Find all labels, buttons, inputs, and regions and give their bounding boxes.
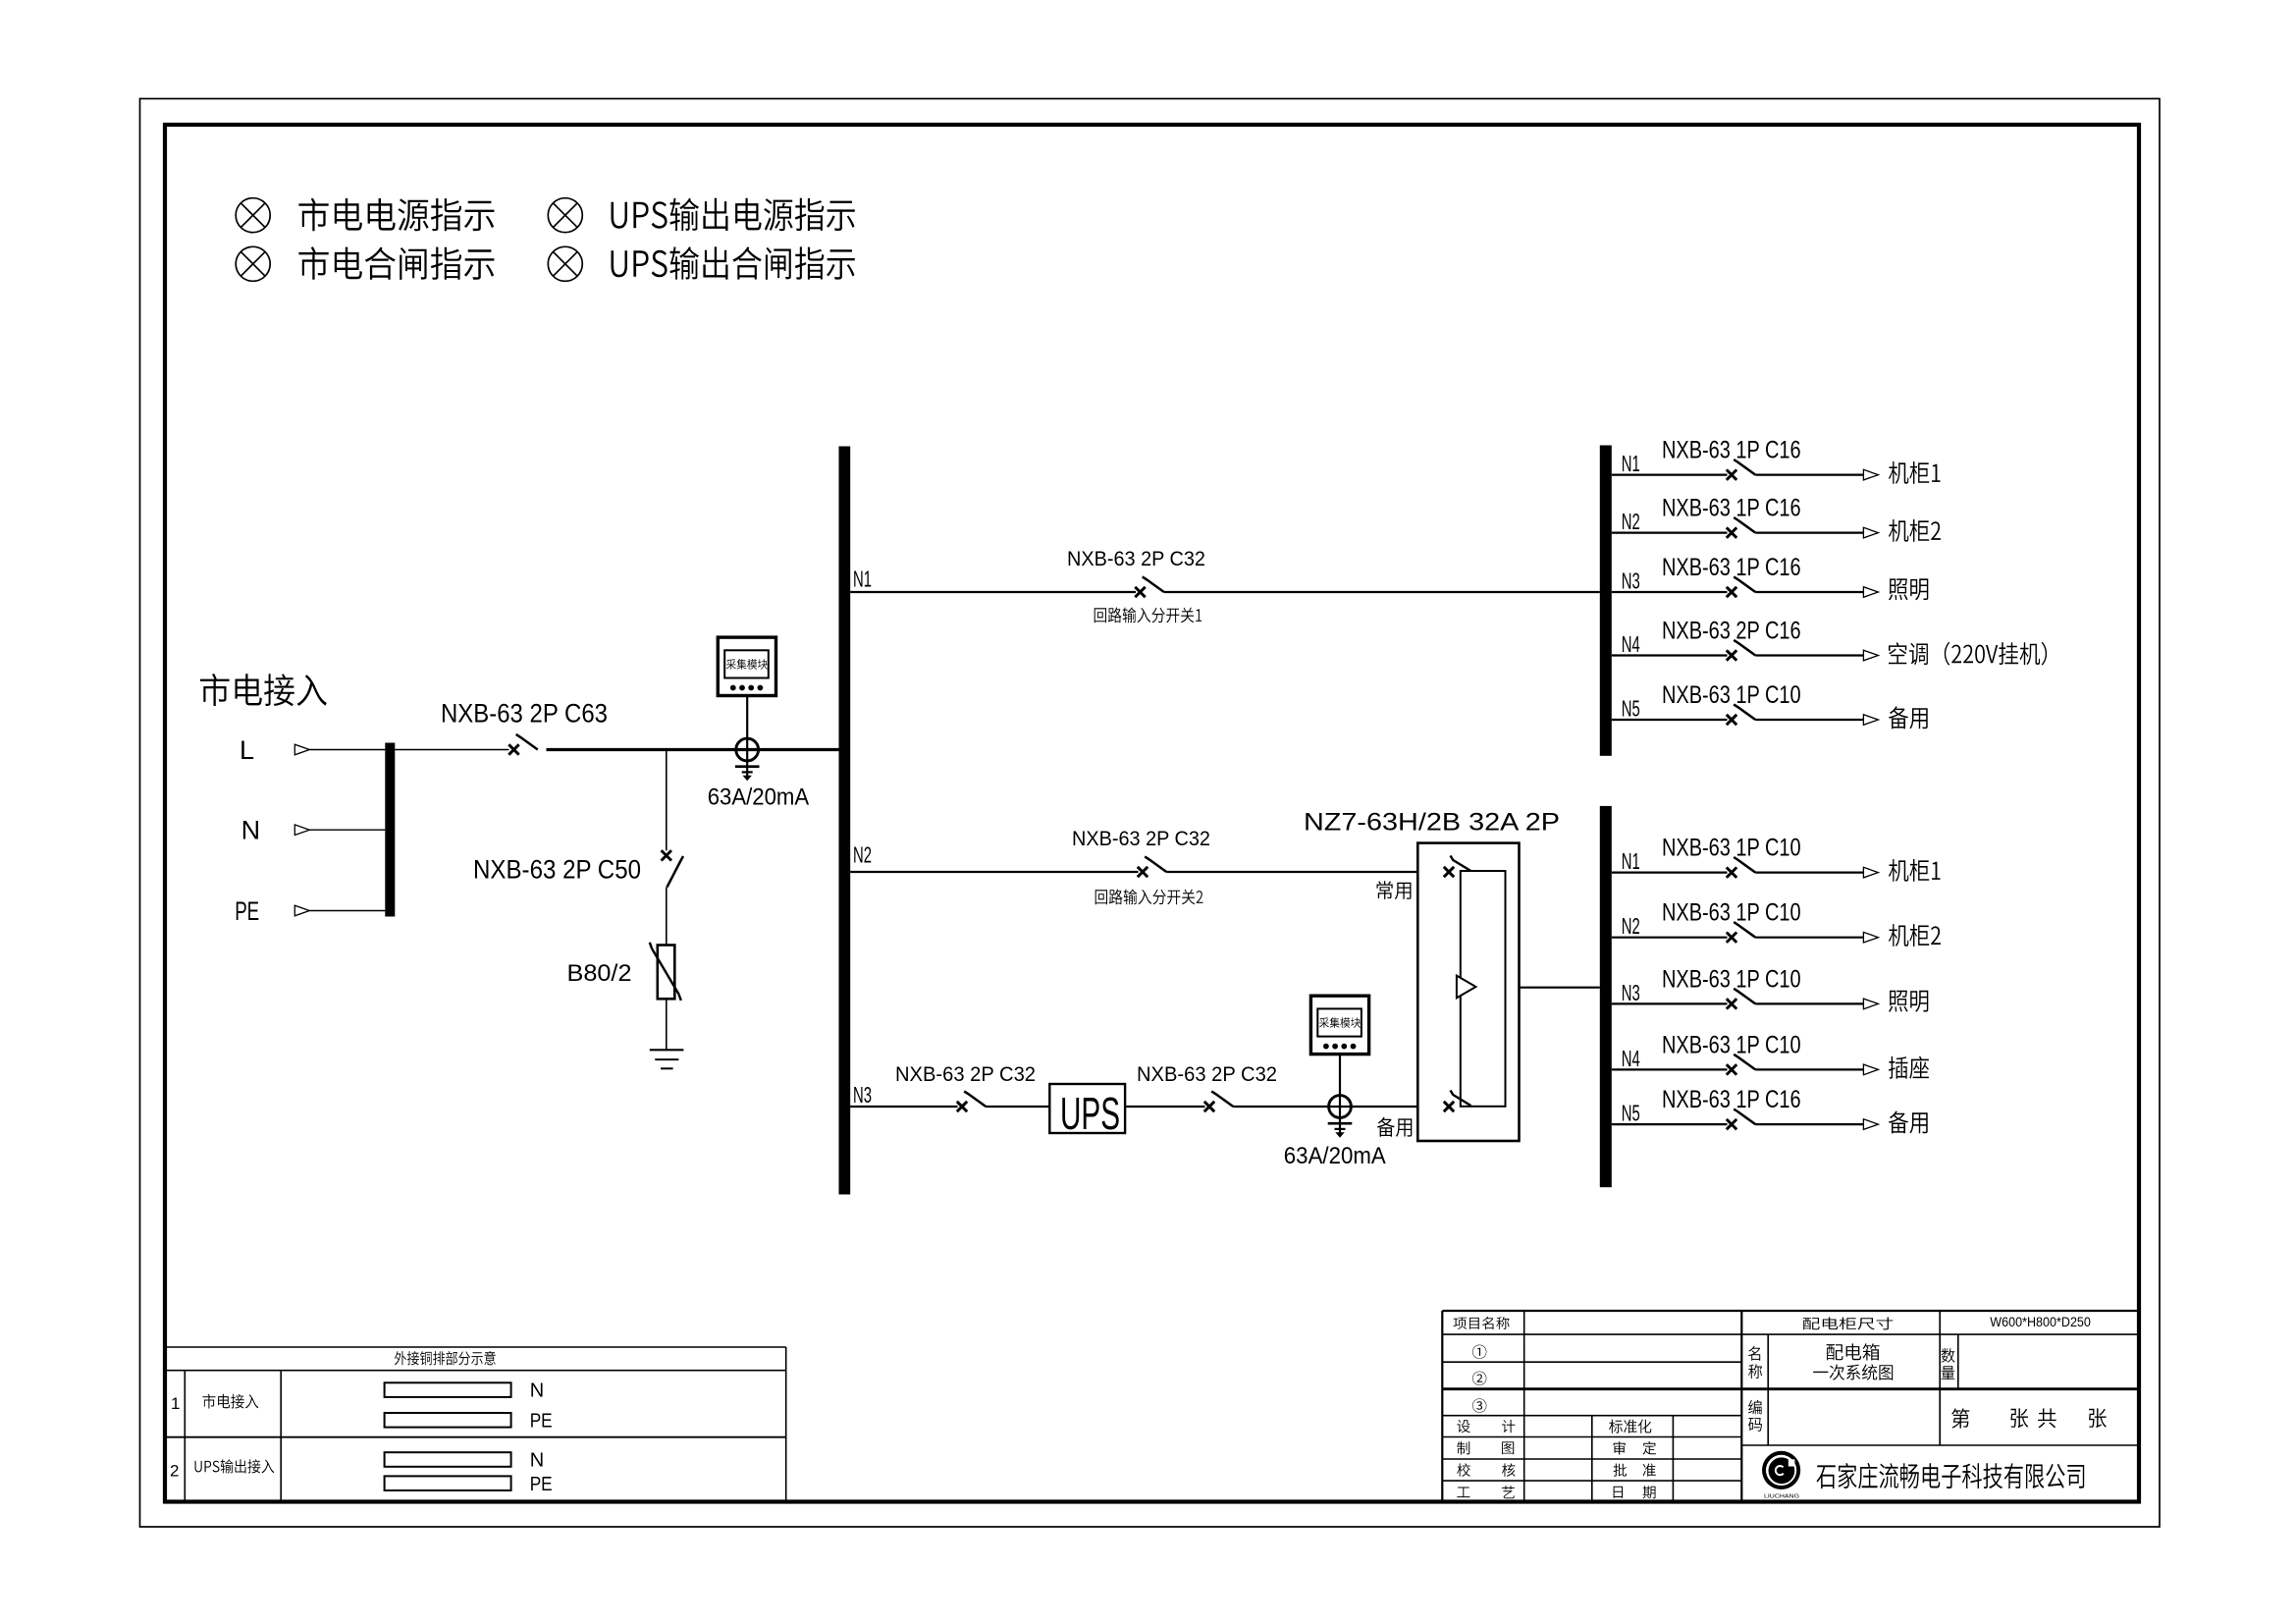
svg-text:NXB-63 2P C32: NXB-63 2P C32 bbox=[1067, 547, 1205, 570]
svg-text:N1: N1 bbox=[1622, 848, 1640, 874]
svg-text:PE: PE bbox=[530, 1410, 553, 1432]
svg-text:2: 2 bbox=[170, 1462, 179, 1481]
svg-text:NZ7-63H/2B 32A 2P: NZ7-63H/2B 32A 2P bbox=[1304, 809, 1560, 837]
svg-text:NXB-63 1P C10: NXB-63 1P C10 bbox=[1662, 681, 1801, 709]
svg-text:NXB-63 2P C32: NXB-63 2P C32 bbox=[1137, 1062, 1277, 1086]
svg-text:LIUCHANG: LIUCHANG bbox=[1764, 1493, 1799, 1499]
svg-text:NXB-63 1P C10: NXB-63 1P C10 bbox=[1662, 899, 1801, 927]
svg-text:NXB-63 1P C10: NXB-63 1P C10 bbox=[1662, 965, 1801, 993]
svg-text:N: N bbox=[241, 816, 261, 845]
svg-text:NXB-63 2P C63: NXB-63 2P C63 bbox=[441, 699, 608, 729]
svg-text:N2: N2 bbox=[1622, 913, 1640, 939]
svg-text:UPS: UPS bbox=[1060, 1088, 1120, 1139]
svg-text:NXB-63 1P C10: NXB-63 1P C10 bbox=[1662, 1031, 1801, 1058]
svg-text:PE: PE bbox=[235, 896, 259, 926]
svg-text:N3: N3 bbox=[1622, 568, 1640, 594]
svg-text:1: 1 bbox=[171, 1394, 180, 1413]
svg-text:63A/20mA: 63A/20mA bbox=[708, 784, 810, 811]
svg-text:NXB-63 1P C16: NXB-63 1P C16 bbox=[1662, 1086, 1801, 1113]
svg-text:N1: N1 bbox=[1622, 451, 1640, 476]
svg-text:W600*H800*D250: W600*H800*D250 bbox=[1990, 1315, 2091, 1329]
svg-text:N3: N3 bbox=[1622, 980, 1640, 1005]
svg-text:PE: PE bbox=[530, 1474, 553, 1495]
svg-text:NXB-63 1P C16: NXB-63 1P C16 bbox=[1662, 495, 1801, 522]
svg-text:N2: N2 bbox=[1622, 509, 1640, 534]
svg-text:N5: N5 bbox=[1622, 696, 1640, 722]
svg-text:N: N bbox=[530, 1450, 544, 1472]
svg-text:NXB-63 2P C50: NXB-63 2P C50 bbox=[473, 855, 641, 885]
svg-text:NXB-63 1P C16: NXB-63 1P C16 bbox=[1662, 554, 1801, 581]
svg-text:NXB-63 1P C16: NXB-63 1P C16 bbox=[1662, 437, 1801, 464]
svg-text:N5: N5 bbox=[1622, 1101, 1640, 1126]
svg-text:N2: N2 bbox=[853, 842, 872, 868]
svg-text:N4: N4 bbox=[1622, 631, 1640, 657]
svg-text:NXB-63 2P C32: NXB-63 2P C32 bbox=[895, 1062, 1036, 1086]
svg-text:NXB-63 2P C32: NXB-63 2P C32 bbox=[1072, 827, 1210, 850]
svg-text:L: L bbox=[240, 735, 254, 765]
svg-text:63A/20mA: 63A/20mA bbox=[1284, 1143, 1386, 1169]
svg-text:N1: N1 bbox=[853, 567, 872, 592]
svg-text:N: N bbox=[530, 1380, 544, 1402]
svg-text:N3: N3 bbox=[853, 1082, 872, 1108]
svg-text:NXB-63 2P C16: NXB-63 2P C16 bbox=[1662, 618, 1801, 645]
svg-text:N4: N4 bbox=[1622, 1046, 1640, 1071]
svg-text:B80/2: B80/2 bbox=[567, 960, 632, 987]
svg-text:NXB-63 1P C10: NXB-63 1P C10 bbox=[1662, 835, 1801, 862]
